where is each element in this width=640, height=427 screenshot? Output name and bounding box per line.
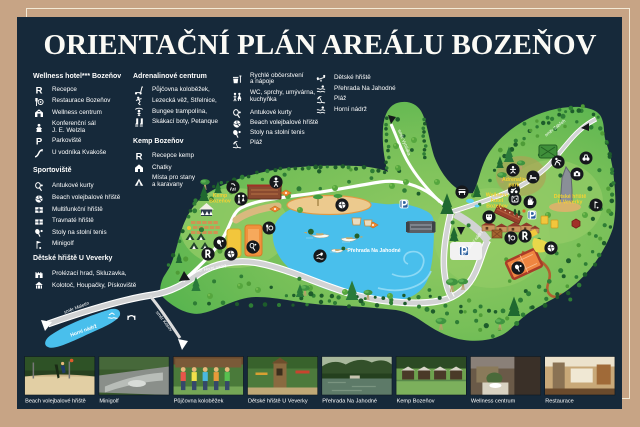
svg-text:Půjčovna koloběžek: Půjčovna koloběžek [174,398,224,405]
svg-text:Wellness centrum: Wellness centrum [471,399,516,405]
svg-text:Restaurace: Restaurace [545,399,574,405]
svg-text:Přehrada Na Jahodné: Přehrada Na Jahodné [322,399,377,405]
svg-text:Minigolf: Minigolf [99,399,119,405]
svg-text:Beach volejbalové hřiště: Beach volejbalové hřiště [25,399,86,405]
svg-text:Dětské hřiště U Veverky: Dětské hřiště U Veverky [248,399,308,405]
svg-text:Kemp Bozeňov: Kemp Bozeňov [397,399,435,405]
